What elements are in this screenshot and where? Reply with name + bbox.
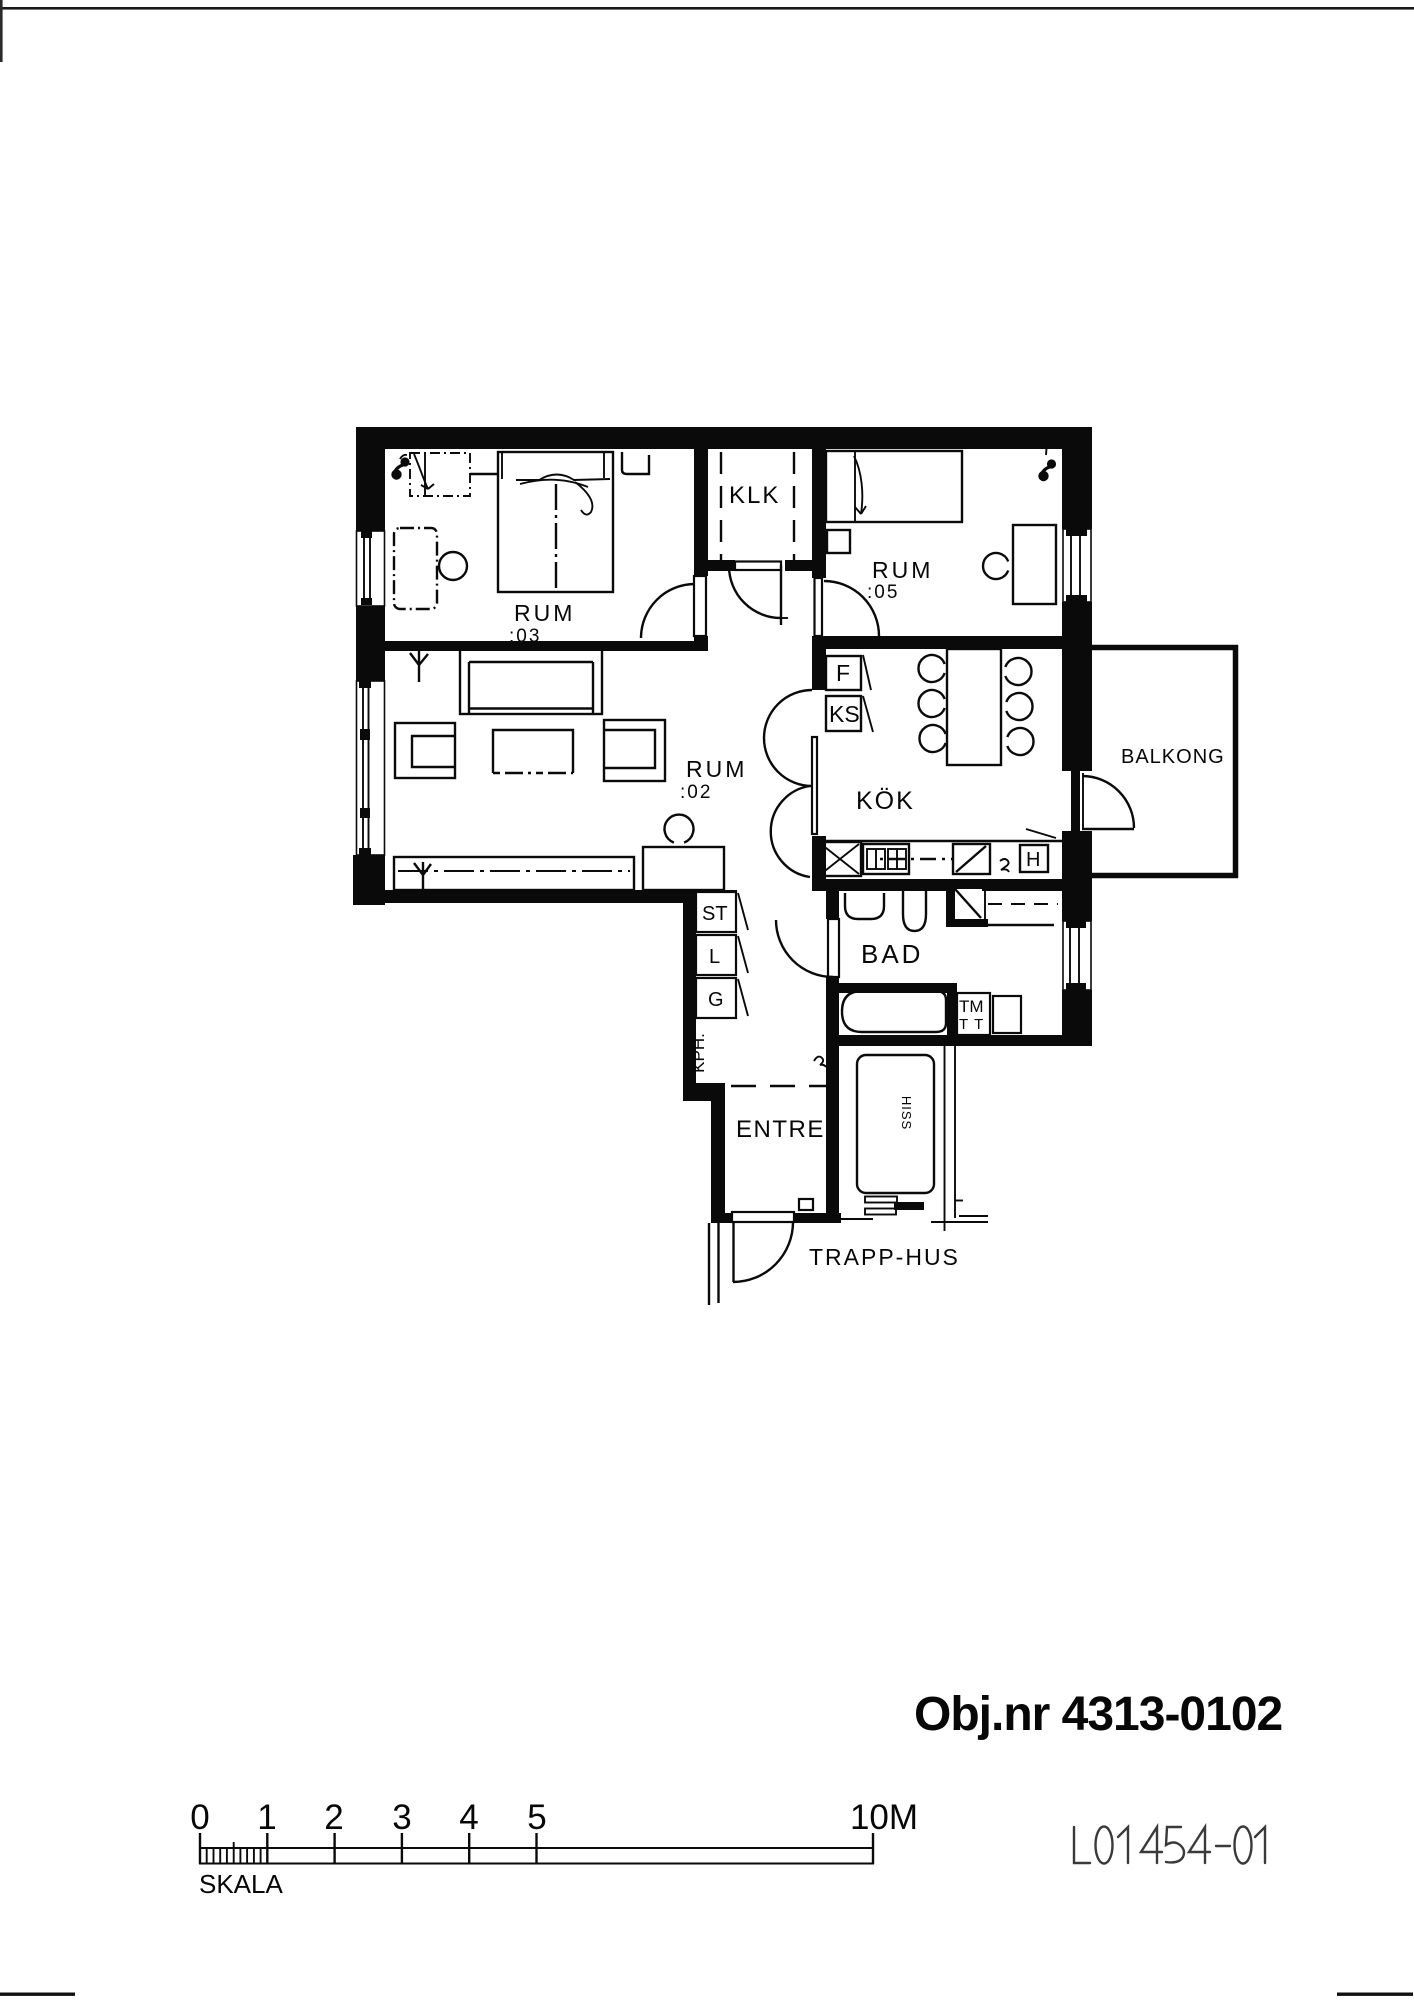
svg-text::02: :02	[680, 782, 712, 803]
svg-text:KLK: KLK	[729, 482, 780, 509]
svg-text:RUM: RUM	[686, 756, 747, 782]
svg-text:KPH.: KPH.	[689, 1033, 708, 1073]
svg-text:KÖK: KÖK	[856, 787, 915, 815]
svg-text:RUM: RUM	[514, 600, 575, 626]
svg-text:TRAPP-HUS: TRAPP-HUS	[809, 1244, 960, 1270]
svg-text:0: 0	[190, 1798, 209, 1837]
svg-text:ENTRE: ENTRE	[736, 1116, 825, 1143]
svg-text:1: 1	[257, 1798, 276, 1837]
svg-text:ST: ST	[702, 903, 728, 925]
svg-text::03: :03	[509, 626, 541, 647]
svg-text:4: 4	[459, 1798, 478, 1837]
svg-text:5: 5	[527, 1798, 546, 1837]
svg-text::05: :05	[867, 582, 899, 603]
svg-text:SKALA: SKALA	[199, 1869, 283, 1899]
svg-text:BALKONG: BALKONG	[1121, 746, 1225, 768]
svg-text:KS: KS	[829, 701, 860, 727]
svg-text:H: H	[1026, 849, 1040, 871]
svg-text:TT: TT	[959, 1016, 989, 1033]
svg-text:3: 3	[392, 1798, 411, 1837]
svg-text:HISS: HISS	[899, 1096, 914, 1130]
svg-text:2: 2	[324, 1798, 343, 1837]
svg-text:G: G	[708, 989, 724, 1011]
svg-text:L: L	[709, 946, 720, 968]
svg-text:10M: 10M	[850, 1798, 918, 1837]
svg-text:TM: TM	[959, 997, 984, 1016]
svg-text:F: F	[836, 660, 850, 686]
svg-text:BAD: BAD	[861, 939, 923, 969]
svg-text:RUM: RUM	[872, 557, 933, 583]
svg-text:Obj.nr 4313-0102: Obj.nr 4313-0102	[914, 1688, 1282, 1741]
